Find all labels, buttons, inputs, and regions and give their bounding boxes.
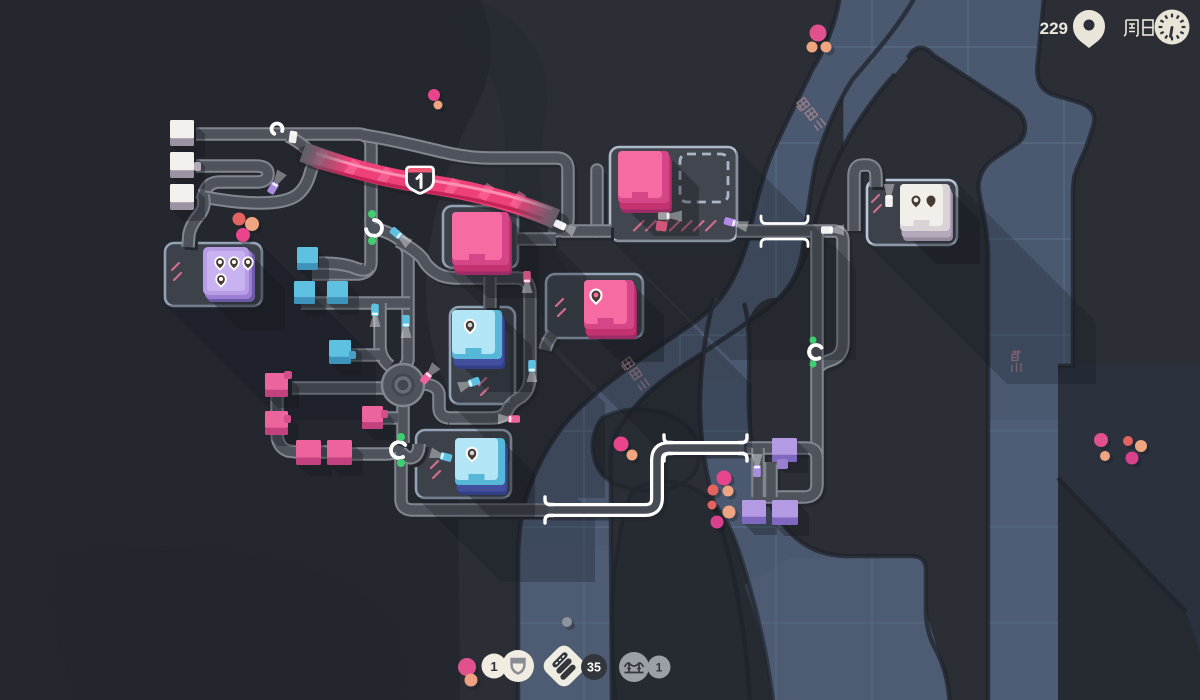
svg-text:229: 229 (1040, 19, 1068, 38)
svg-text:1: 1 (656, 661, 663, 675)
svg-text:35: 35 (587, 661, 601, 675)
svg-text:1: 1 (490, 659, 497, 674)
